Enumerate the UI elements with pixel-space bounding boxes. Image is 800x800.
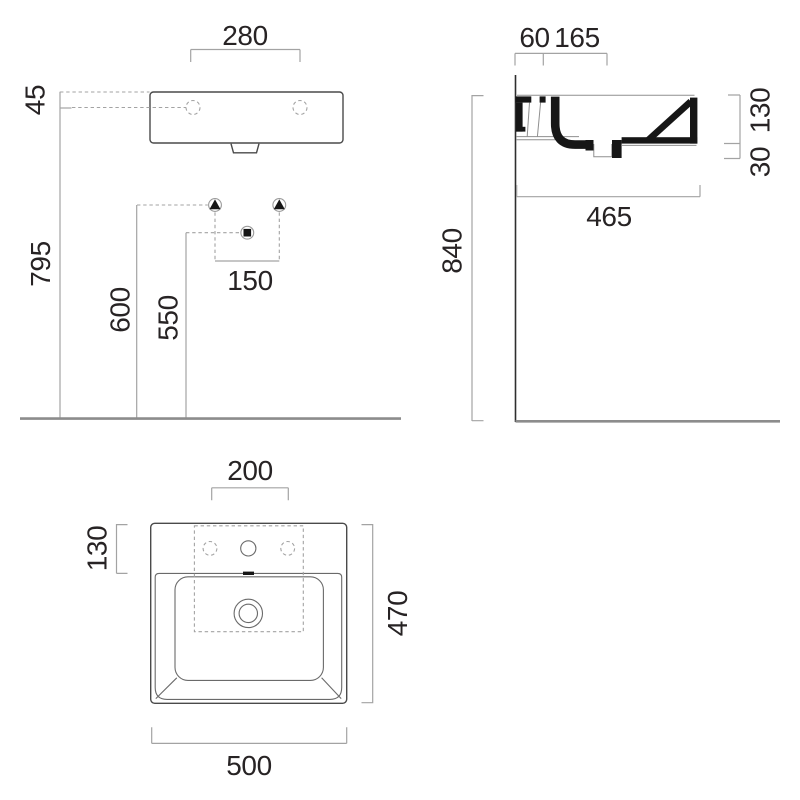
mount-bracket-symbol-right — [273, 199, 286, 212]
section-cut — [516, 96, 698, 158]
mount-bracket-symbol-left — [209, 199, 222, 212]
dim-470-label: 470 — [382, 591, 413, 637]
dim-465-label: 465 — [586, 201, 632, 232]
dim-470: 470 — [362, 524, 414, 703]
dim-500-label: 500 — [226, 750, 272, 781]
dim-60-label: 60 — [519, 22, 549, 53]
plan-bowl-bottom — [175, 577, 323, 681]
overflow-slot — [243, 572, 254, 575]
square-icon — [244, 229, 252, 237]
technical-drawing: 280 45 795 600 550 — [0, 0, 800, 800]
dim-795: 795 — [25, 241, 56, 287]
dim-500: 500 — [152, 727, 347, 781]
plan-drain-outer — [234, 599, 262, 627]
dim-60-165: 60 165 — [515, 22, 607, 65]
dim-45-label: 45 — [20, 85, 51, 115]
dim-130-plan: 130 — [82, 524, 128, 573]
dim-465: 465 — [517, 185, 700, 232]
plan-corner-diagonal-left — [156, 678, 177, 699]
dim-150: 150 — [215, 212, 279, 296]
plan-corner-diagonal-right — [322, 678, 342, 699]
dim-840-label: 840 — [437, 228, 468, 274]
dim-130-plan-label: 130 — [82, 526, 113, 572]
dim-200: 200 — [212, 455, 289, 500]
dim-550-label: 550 — [153, 295, 184, 341]
bowl-front-slope — [649, 102, 691, 140]
front-drain-stub — [231, 144, 259, 153]
dim-840: 840 — [437, 95, 484, 421]
plan-tap-hole-right — [281, 542, 295, 556]
plan-tap-hole-center — [241, 541, 256, 556]
front-view: 280 45 795 600 550 — [20, 20, 401, 418]
dim-280: 280 — [191, 20, 300, 62]
side-view: 60 165 840 465 130 30 — [437, 22, 780, 422]
dim-795-label: 795 — [25, 241, 56, 287]
front-tap-hole-left — [186, 101, 200, 115]
drawing-sheet: 280 45 795 600 550 — [0, 0, 800, 800]
dim-280-label: 280 — [222, 20, 268, 51]
dim-30-label: 30 — [745, 147, 776, 177]
plan-view: 200 130 470 500 — [82, 455, 414, 781]
dim-150-label: 150 — [227, 265, 273, 296]
front-basin-outline — [150, 92, 343, 143]
dim-600-label: 600 — [105, 287, 136, 333]
plan-drain-inner — [239, 604, 257, 622]
bowl-back-wall — [555, 97, 588, 145]
section-contours — [516, 95, 697, 157]
dim-130-30: 130 30 — [724, 88, 776, 177]
dim-130-side-label: 130 — [745, 88, 776, 134]
plan-basin-outline — [151, 523, 347, 703]
dim-200-label: 200 — [227, 455, 273, 486]
waste-outlet-symbol — [241, 226, 254, 239]
front-tap-hole-right — [293, 101, 307, 115]
plan-tap-hole-left — [203, 542, 217, 556]
dim-165-label: 165 — [554, 22, 600, 53]
